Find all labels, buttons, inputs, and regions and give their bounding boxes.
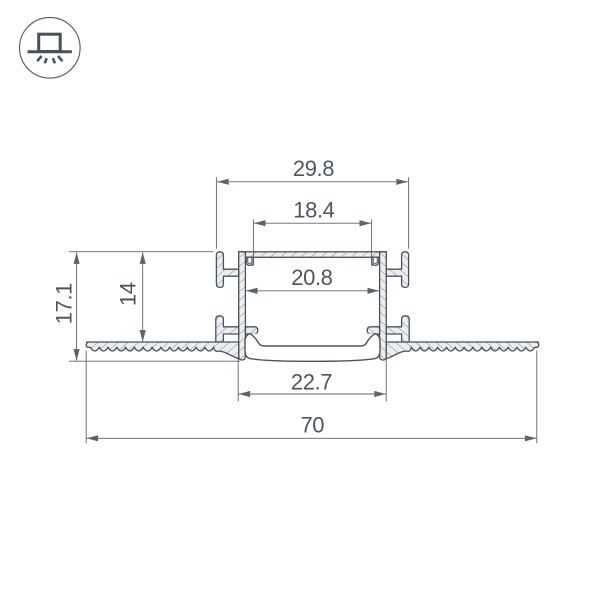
- svg-text:29.8: 29.8: [293, 156, 334, 181]
- svg-text:14: 14: [115, 282, 140, 306]
- svg-text:22.7: 22.7: [291, 370, 332, 395]
- svg-text:18.4: 18.4: [293, 198, 334, 223]
- svg-text:70: 70: [300, 413, 324, 438]
- svg-text:20.8: 20.8: [291, 265, 332, 290]
- svg-text:17.1: 17.1: [51, 283, 76, 324]
